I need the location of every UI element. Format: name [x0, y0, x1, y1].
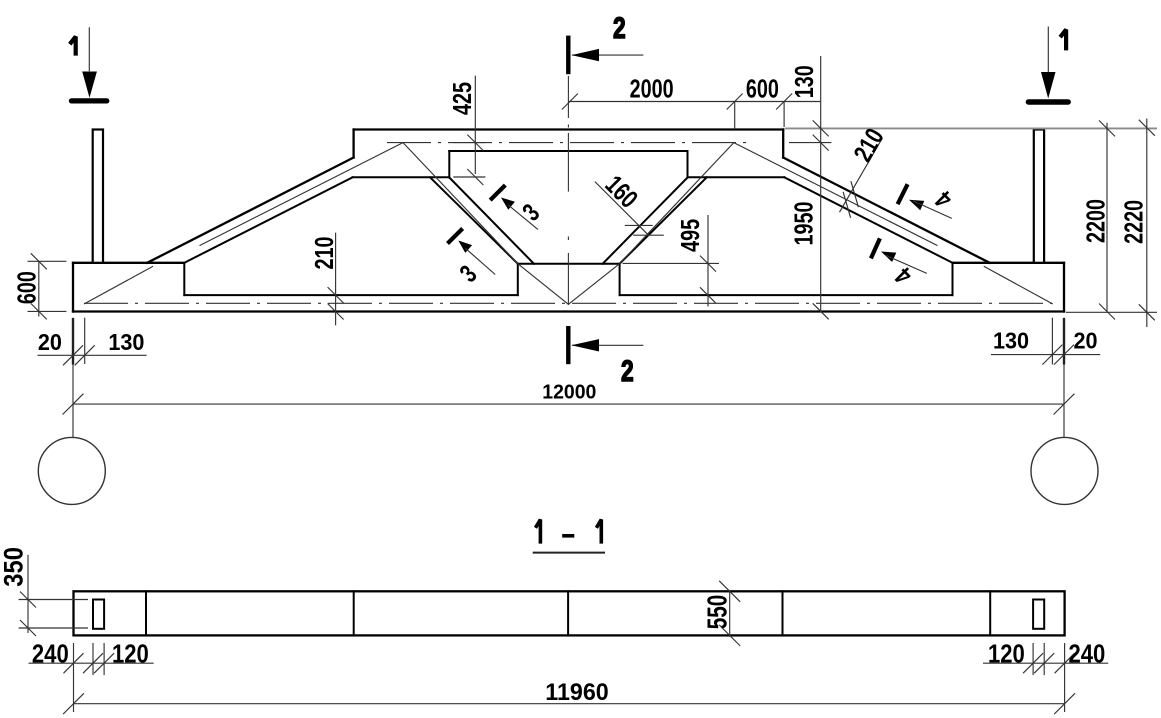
svg-text:4: 4: [889, 262, 918, 291]
svg-text:120: 120: [988, 640, 1025, 669]
svg-text:12000: 12000: [542, 381, 596, 404]
svg-text:550: 550: [702, 595, 733, 630]
svg-text:130: 130: [789, 65, 818, 98]
svg-text:4: 4: [929, 185, 958, 214]
svg-text:425: 425: [447, 82, 476, 115]
svg-text:130: 130: [108, 329, 144, 355]
svg-text:2000: 2000: [630, 74, 674, 103]
svg-text:600: 600: [12, 271, 41, 304]
svg-text:130: 130: [993, 328, 1029, 354]
svg-text:240: 240: [32, 640, 69, 669]
svg-text:2200: 2200: [1081, 199, 1110, 243]
svg-text:495: 495: [676, 219, 705, 252]
svg-text:2: 2: [613, 11, 626, 45]
svg-text:120: 120: [112, 640, 149, 669]
svg-text:20: 20: [1073, 328, 1097, 354]
svg-text:3: 3: [516, 198, 544, 226]
svg-text:1950: 1950: [789, 202, 818, 246]
svg-text:20: 20: [38, 329, 62, 355]
svg-text:240: 240: [1068, 640, 1105, 669]
svg-text:600: 600: [746, 74, 779, 103]
svg-text:2220: 2220: [1119, 200, 1148, 244]
svg-text:160: 160: [600, 170, 644, 214]
svg-text:350: 350: [0, 547, 29, 587]
svg-text:11960: 11960: [545, 679, 608, 705]
svg-text:2: 2: [621, 354, 634, 388]
svg-text:210: 210: [309, 237, 338, 270]
svg-text:3: 3: [454, 259, 482, 287]
svg-text:210: 210: [848, 123, 890, 166]
